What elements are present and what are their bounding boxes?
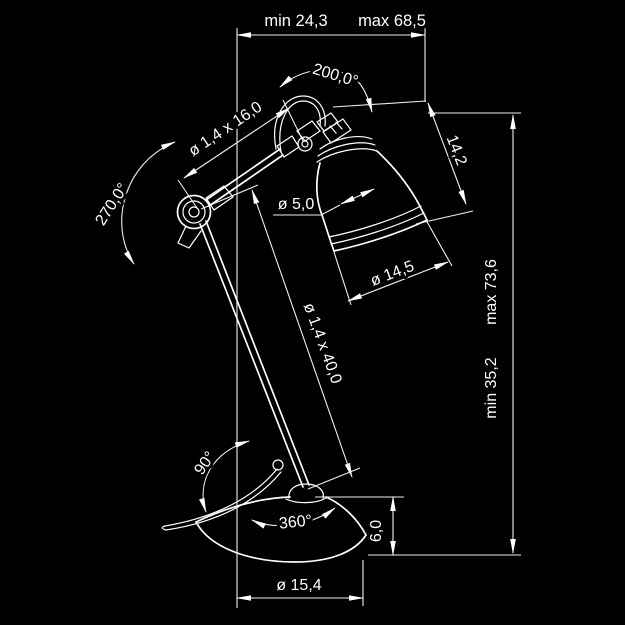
lamp-handle-loop: [275, 96, 326, 152]
label-height-span-max: max 73,6: [483, 259, 500, 325]
dim-top-span: [237, 28, 425, 608]
label-elbow-rotation: 270,0°: [92, 180, 132, 228]
dimension-labels: min 24,3 max 68,5 200,0° ø 1,4 x 16,0 27…: [92, 12, 500, 594]
label-top-span-min: min 24,3: [264, 12, 327, 30]
label-height-span-min: min 35,2: [483, 357, 500, 418]
lamp-socket: [317, 113, 351, 143]
label-base-rotation: 360°: [278, 512, 313, 532]
label-lower-arm: ø 1,4 x 40,0: [300, 301, 345, 386]
dim-shade-mouth: [334, 220, 452, 305]
lamp-upper-arm: [206, 149, 283, 206]
lamp-shade: [317, 137, 427, 251]
label-top-span-max: max 68,5: [358, 12, 426, 30]
dim-height-span: [368, 113, 521, 555]
lamp-lower-arm: [200, 221, 309, 487]
lamp-cable: [162, 460, 283, 530]
technical-drawing-page: min 24,3 max 68,5 200,0° ø 1,4 x 16,0 27…: [0, 0, 625, 625]
label-head-rotation: 200,0°: [311, 61, 360, 91]
label-base-swivel: 90°: [191, 449, 219, 479]
dim-base-swivel-arc: [203, 441, 249, 512]
label-base-height: 6,0: [368, 520, 385, 542]
label-base-diameter: ø 15,4: [276, 577, 321, 594]
technical-drawing-canvas: min 24,3 max 68,5 200,0° ø 1,4 x 16,0 27…: [0, 0, 625, 625]
dim-lower-arm: [201, 185, 360, 489]
label-shade-neck-diameter: ø 5,0: [278, 196, 315, 213]
label-shade-mouth-diameter: ø 14,5: [368, 258, 417, 290]
lamp-head-joint: [277, 121, 320, 157]
label-head-length: 14,2: [443, 133, 470, 168]
dim-elbow-rotation-arc: [122, 142, 175, 264]
